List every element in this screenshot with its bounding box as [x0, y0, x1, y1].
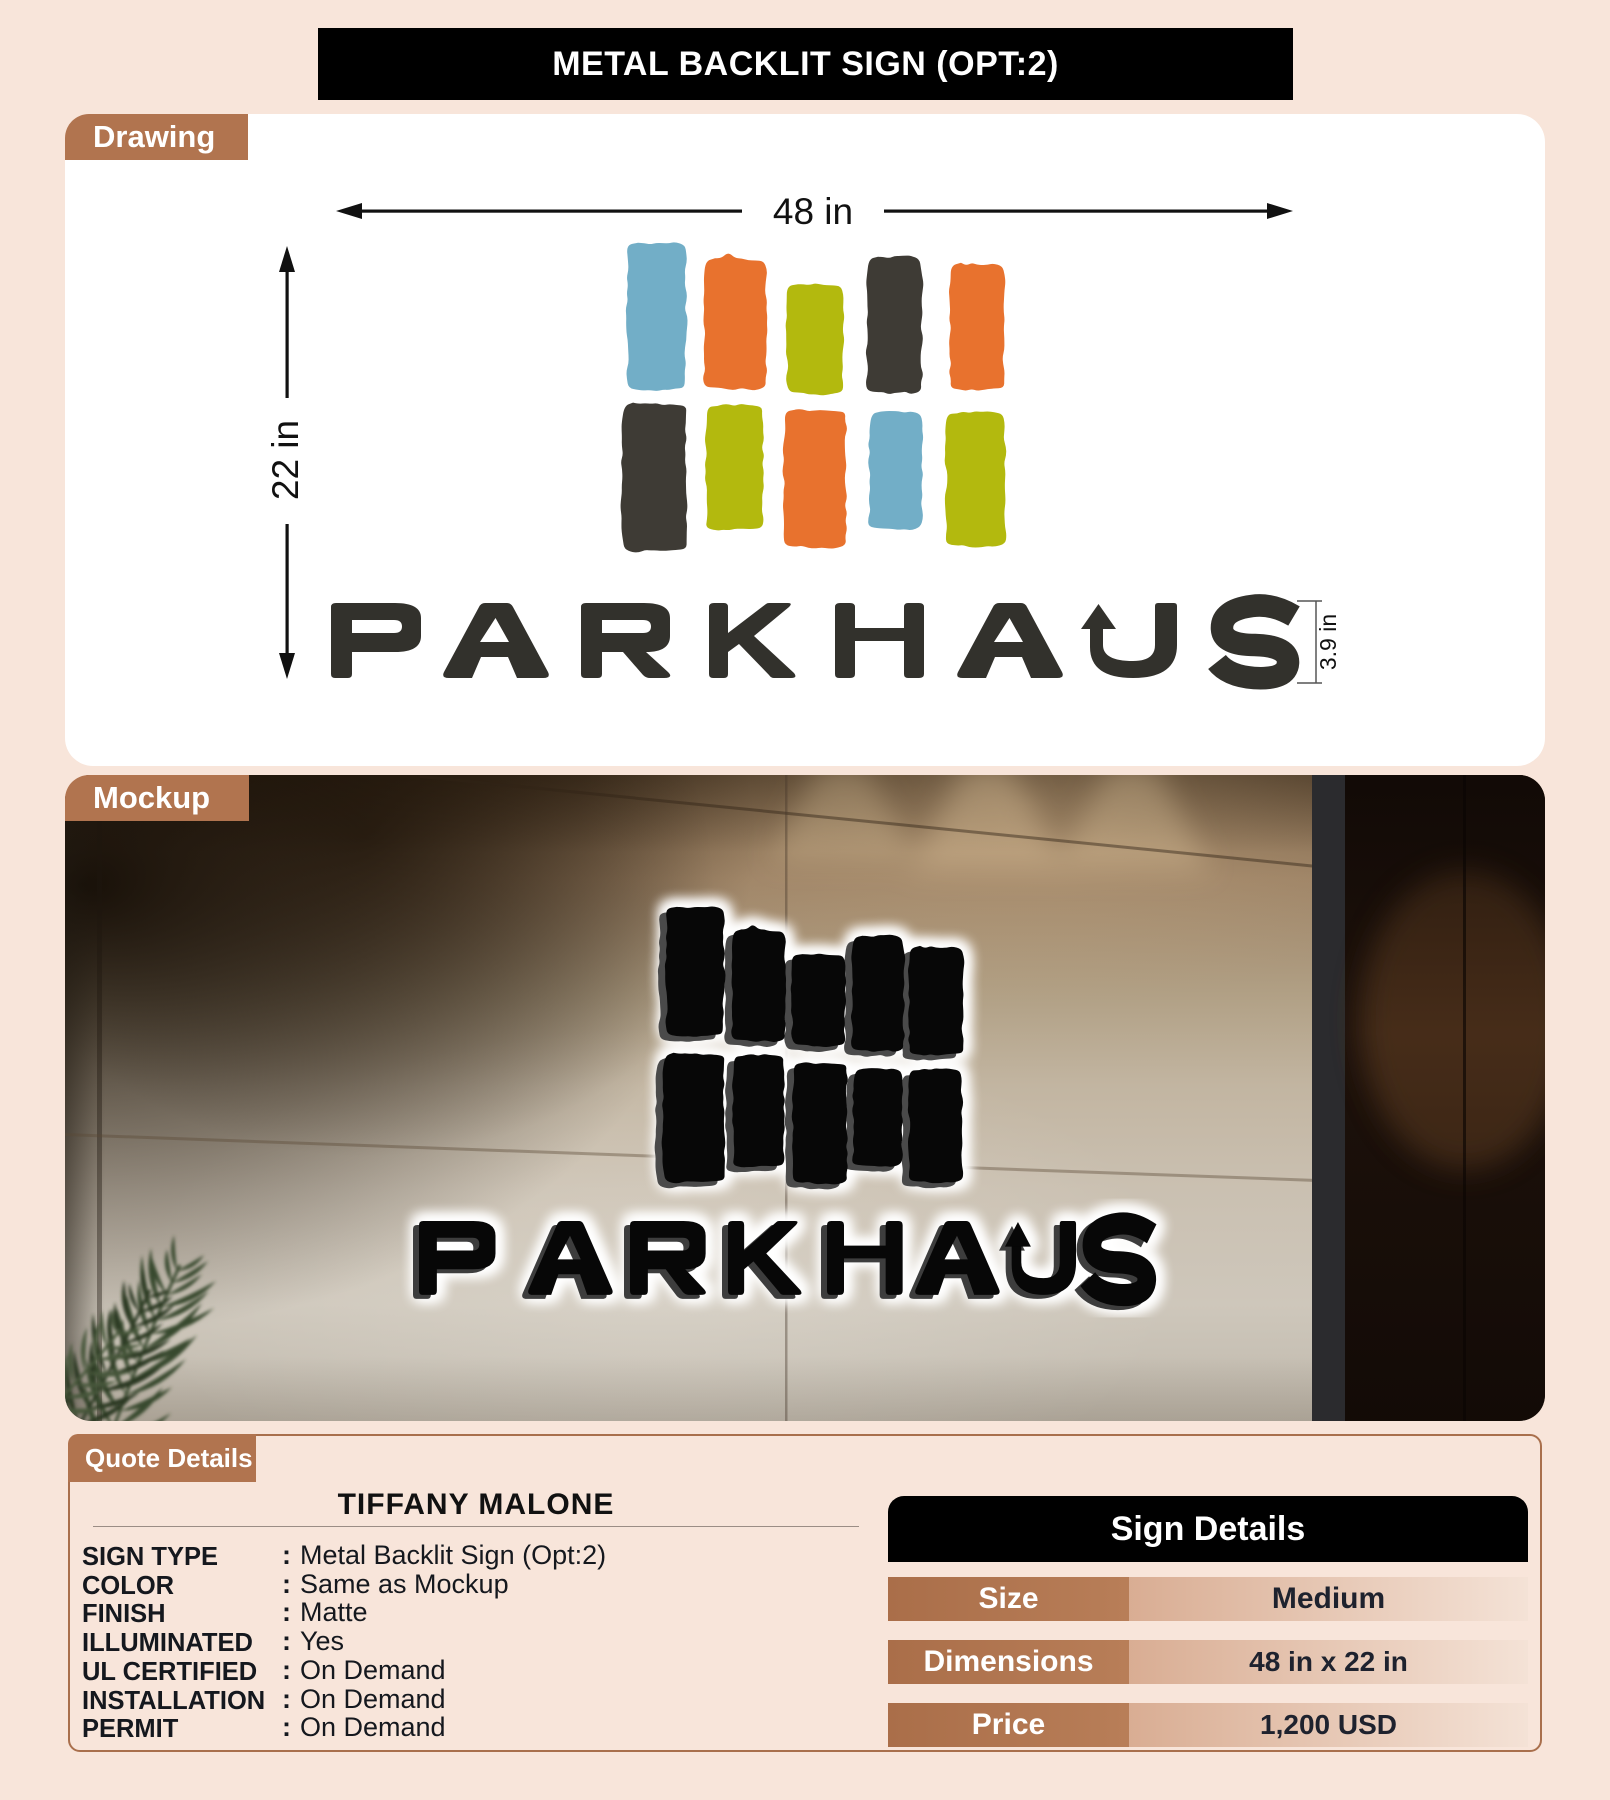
svg-text:22 in: 22 in [265, 420, 306, 500]
svg-text:48 in: 48 in [773, 191, 853, 232]
svg-text:3.9 in: 3.9 in [1315, 614, 1341, 670]
